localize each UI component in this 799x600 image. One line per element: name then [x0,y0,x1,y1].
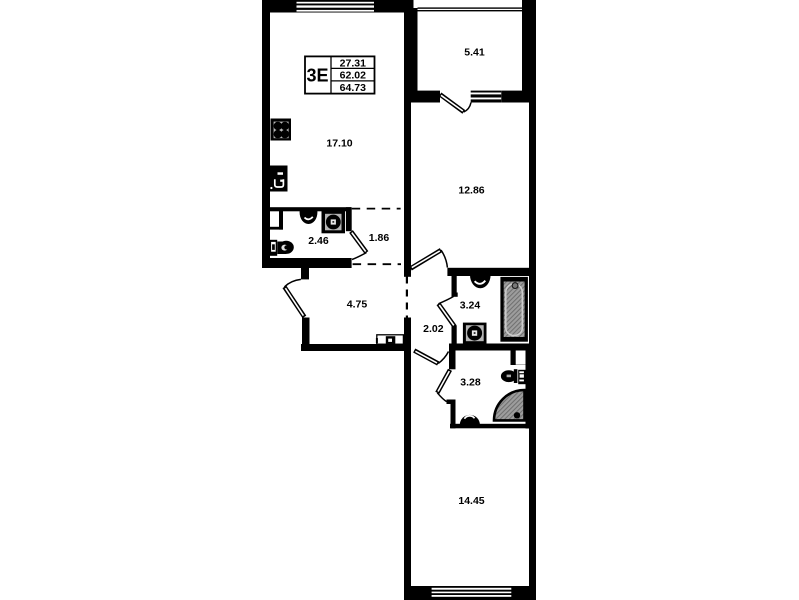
svg-text:27.31: 27.31 [340,57,366,69]
svg-text:14.45: 14.45 [458,495,484,507]
svg-text:1.86: 1.86 [369,232,390,244]
svg-text:64.73: 64.73 [340,82,366,94]
svg-text:17.10: 17.10 [326,138,352,150]
svg-text:3.28: 3.28 [460,377,481,389]
svg-text:2.46: 2.46 [308,235,329,247]
svg-text:3.24: 3.24 [460,300,481,312]
svg-text:62.02: 62.02 [340,70,366,82]
svg-text:2.02: 2.02 [423,323,444,335]
svg-text:4.75: 4.75 [347,299,368,311]
svg-text:5.41: 5.41 [464,47,485,59]
svg-text:3Е: 3Е [306,66,328,86]
svg-text:12.86: 12.86 [458,185,484,197]
